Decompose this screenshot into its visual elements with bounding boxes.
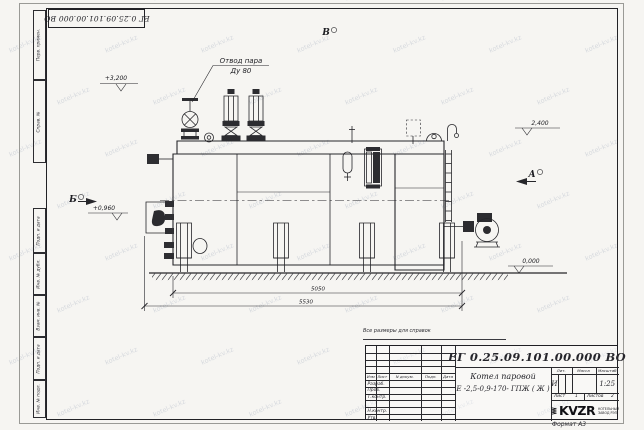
boiler-shell [160, 141, 452, 270]
sheet-label: Лист [554, 394, 565, 399]
section-b: Б [68, 194, 97, 205]
note-underline [363, 339, 506, 340]
massa-header: Масса [572, 367, 596, 374]
callout-line2: Ду 80 [230, 67, 252, 75]
safety-valve-2 [247, 89, 266, 141]
elevation-2400: 2,400 [515, 120, 560, 135]
row-utv: Утв. [368, 416, 377, 421]
elevation-text: +3,200 [105, 75, 127, 82]
steam-outlet-valve [181, 98, 199, 140]
row-nkontr: Н.контр. [368, 409, 388, 414]
product-name-line2: Е -2,5-0,9-170- ГПЖ ( Ж ) [455, 383, 551, 395]
callout-line1: Отвод пара [220, 57, 263, 65]
kvzr-logo-text: KVZR [559, 403, 595, 418]
titleblock-doc-number: ЕГ 0.25.09.101.00.000 ВО [455, 348, 619, 366]
sheets-label: Листов [587, 394, 603, 399]
rear-ladder [446, 150, 452, 222]
steam-outlet-callout: Отвод пара Ду 80 [192, 57, 269, 102]
product-name-line1: Котел паровой [455, 370, 551, 383]
col-data: Дата [441, 373, 455, 380]
elevation-text: 2,400 [531, 120, 548, 127]
col-izm: Изм [366, 373, 376, 380]
water-level-gauges [343, 147, 382, 189]
elevation-0000: 0,000 [508, 258, 553, 273]
safety-valves [205, 89, 266, 142]
dim-text-5050: 5050 [311, 287, 325, 293]
reference-note: Все размеры для справок [363, 328, 431, 334]
safety-valve-1 [222, 89, 241, 141]
section-a: А [516, 169, 543, 185]
scale-value: 1:25 [596, 374, 620, 393]
section-letter: Б [68, 195, 77, 205]
kvzr-sub2: ЗАВОД РЭП [598, 411, 619, 415]
dim-text-5530: 5530 [299, 300, 313, 306]
kvzr-logo: KVZR КОТЕЛЬНЫЙ ЗАВОД РЭП [551, 400, 619, 421]
elevation-3200: +3,200 [100, 75, 138, 91]
section-v: В [321, 27, 336, 38]
col-dokum: N докум. [389, 373, 421, 380]
lit-value: И [551, 374, 558, 393]
elevation-0960: +0,960 [88, 205, 128, 220]
elevation-text: 0,000 [522, 258, 539, 265]
scanned-boiler-drawing-sheet: { "watermark": { "text": "kotel-kv.kz" }… [0, 0, 644, 430]
drum-top-fittings [349, 120, 459, 144]
ground-line [149, 273, 567, 280]
row-razrab: Разраб. [368, 382, 385, 387]
sheet-value: 1 [575, 394, 578, 399]
kvzr-spring-icon [551, 404, 557, 418]
section-markers: Б В А [68, 27, 542, 205]
elevation-text: +0,960 [93, 205, 115, 212]
row-prov: Пров. [368, 388, 381, 393]
burner-front-box [146, 154, 174, 259]
title-block: ЕГ 0.25.09.101.00.000 ВО Изм Лист N доку… [365, 345, 618, 420]
manhole [193, 239, 207, 254]
elevation-marks: +3,200 2,400 +0,960 0,000 [88, 75, 560, 273]
section-letter: В [321, 28, 330, 38]
row-tkontr: Т.контр. [368, 395, 387, 400]
section-letter: А [527, 170, 535, 180]
lit-header: Лит. [551, 367, 572, 374]
col-podp: Подп. [421, 373, 442, 380]
masshtab-header: Масштаб [596, 367, 620, 374]
format-label: Формат А3 [538, 421, 600, 428]
sheets-value: 2 [611, 394, 614, 399]
col-list: Лист [376, 373, 390, 380]
feed-pump [444, 213, 500, 247]
